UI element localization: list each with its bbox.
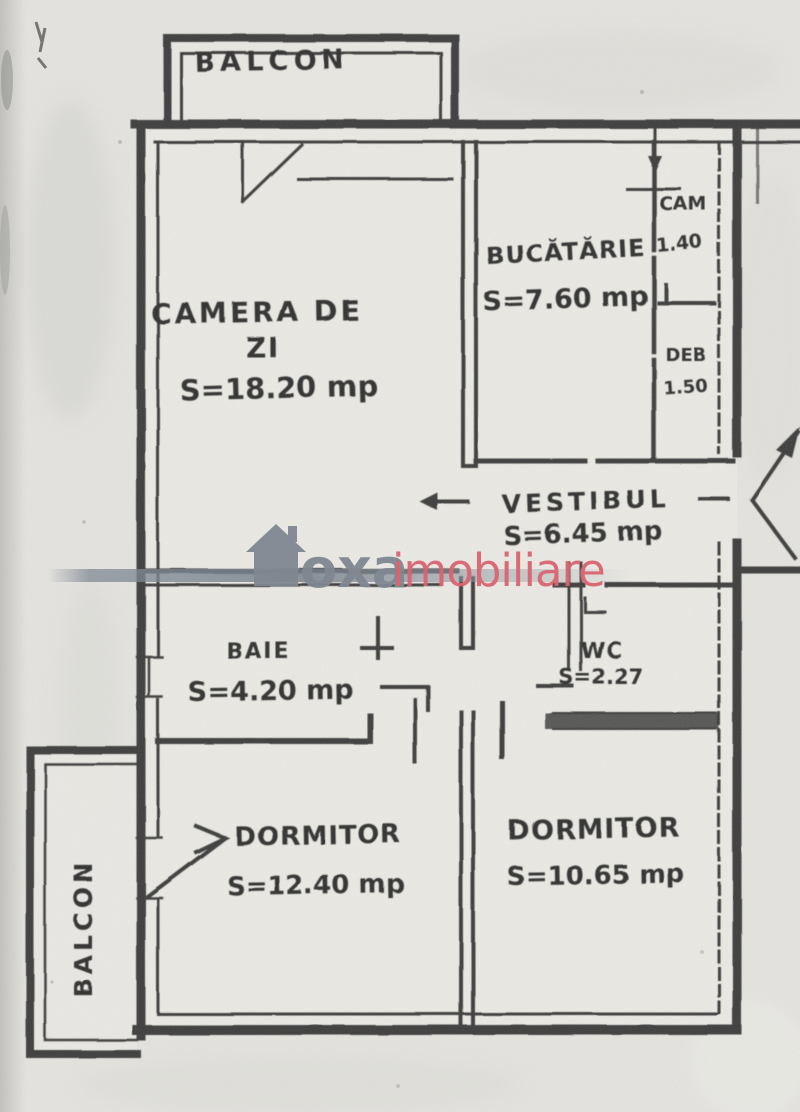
scanned-floor-plan-page: BALCON CAMERA DE ZI S=18.20 mp BUCĂTĂRIE… [0,0,800,1112]
brand-text-imobiliare: imobiliare [392,544,605,597]
floor-plan-svg: BALCON CAMERA DE ZI S=18.20 mp BUCĂTĂRIE… [0,0,800,1112]
